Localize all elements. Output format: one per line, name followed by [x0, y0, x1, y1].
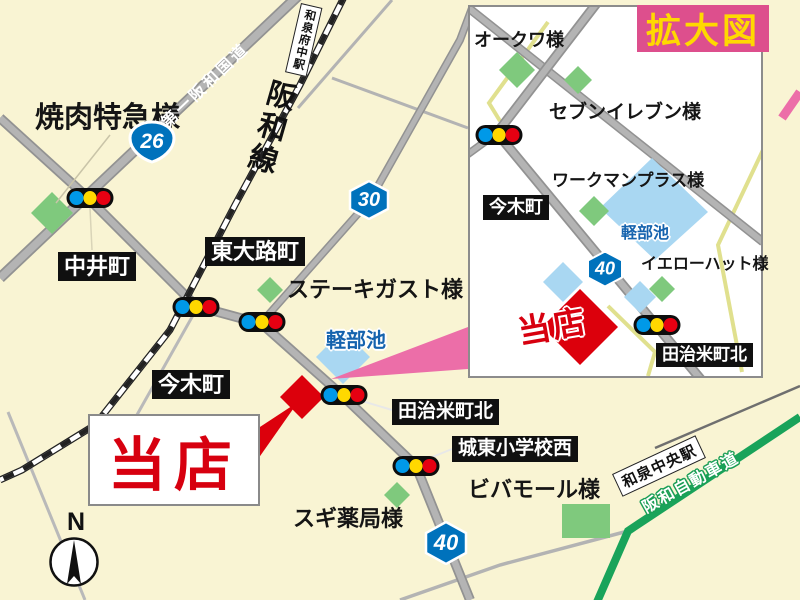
poi-sugi-pharmacy: スギ薬局様	[293, 501, 403, 533]
traffic-light-yellow-dot	[83, 191, 97, 205]
inset-intersection-imakicho: 今木町	[483, 195, 549, 220]
traffic-light-red-dot	[423, 459, 437, 473]
traffic-light-blue-dot	[637, 318, 651, 332]
traffic-light-yellow-dot	[337, 388, 351, 402]
road-name-hanwa-kokudo: 第一阪和国道	[155, 36, 254, 132]
traffic-light-red-dot	[664, 318, 678, 332]
inset-intersection-tajimecho-kita: 田治米町北	[656, 343, 753, 367]
access-map: 焼肉特急様 第一阪和国道 阪和線 和泉府中駅 和泉中央駅 阪和自動車道 中井町 …	[0, 0, 800, 600]
traffic-light-blue-dot	[479, 128, 493, 142]
compass-north-label: N	[67, 508, 85, 537]
traffic-light-yellow-dot	[255, 315, 269, 329]
traffic-light-yellow-dot	[650, 318, 664, 332]
route-40-badge-main: 40	[423, 521, 469, 565]
traffic-light-yellow-dot	[189, 300, 203, 314]
traffic-light-icon	[476, 125, 523, 145]
inset-poi-workman-plus: ワークマンプラス様	[552, 166, 704, 191]
intersection-imakicho: 今木町	[152, 370, 230, 399]
shop-location-diamond	[280, 375, 324, 419]
route-30-badge: 30	[348, 180, 390, 220]
station-izumi-fuchu: 和泉府中駅	[285, 3, 322, 77]
traffic-light-red-dot	[269, 315, 283, 329]
inset-title-badge: 拡大図	[637, 5, 769, 52]
traffic-light-icon	[173, 297, 220, 317]
railway-name-hanwa-line: 阪和線	[236, 74, 304, 181]
shop-label: 当店	[108, 418, 240, 502]
traffic-light-icon	[634, 315, 681, 335]
semboku-rail-line	[655, 386, 800, 448]
route-40-badge-inset: 40	[586, 251, 624, 288]
inset-poi-okuwa: オークワ様	[474, 26, 564, 52]
route-26-badge: 26	[126, 120, 178, 164]
inset-poi-seven-eleven: セブンイレブン様	[549, 97, 701, 124]
traffic-light-red-dot	[97, 191, 111, 205]
intersection-tajimecho-kita: 田治米町北	[392, 399, 499, 425]
poi-viva-mall: ビバモール様	[468, 472, 600, 504]
traffic-light-blue-dot	[242, 315, 256, 329]
inset-karube-pond-label: 軽部池	[621, 219, 669, 243]
traffic-light-blue-dot	[176, 300, 190, 314]
karube-pond-label-main: 軽部池	[326, 324, 386, 353]
traffic-light-blue-dot	[70, 191, 84, 205]
traffic-light-blue-dot	[324, 388, 338, 402]
shop-label-box: 当店	[88, 414, 260, 506]
traffic-light-icon	[321, 385, 368, 405]
inset-poi-yellow-hat: イエローハット様	[641, 250, 769, 274]
traffic-light-red-dot	[203, 300, 217, 314]
intersection-higashiojicho: 東大路町	[205, 237, 305, 266]
poi-steak-gusto: ステーキガスト様	[287, 272, 463, 304]
traffic-light-blue-dot	[396, 459, 410, 473]
traffic-light-yellow-dot	[492, 128, 506, 142]
traffic-light-icon	[393, 456, 440, 476]
traffic-light-icon	[67, 188, 114, 208]
traffic-light-red-dot	[351, 388, 365, 402]
intersection-nakaicho: 中井町	[58, 252, 136, 281]
compass-icon	[48, 536, 100, 588]
pink-road-sliver	[782, 92, 800, 118]
traffic-light-yellow-dot	[409, 459, 423, 473]
inset-map-box	[468, 5, 763, 378]
traffic-light-icon	[239, 312, 286, 332]
traffic-light-red-dot	[506, 128, 520, 142]
intersection-joto-shogakko-nishi: 城東小学校西	[452, 436, 578, 462]
